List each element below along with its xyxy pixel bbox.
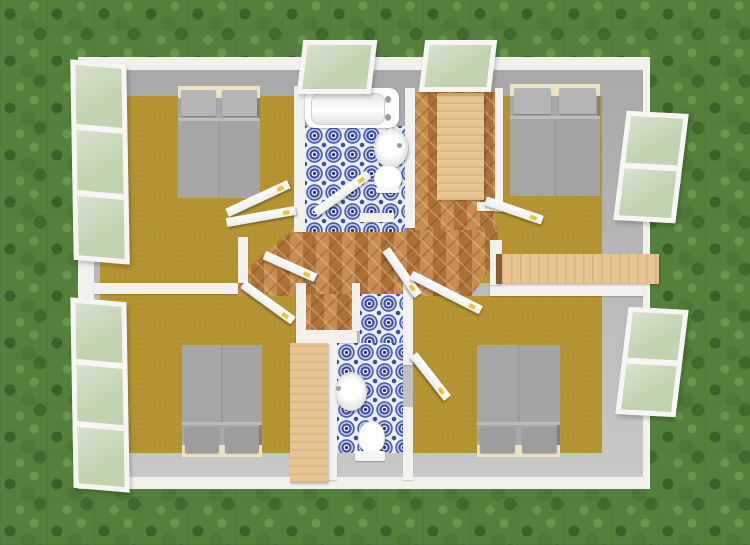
wall-bathroom-right: [405, 88, 415, 228]
bed-pillow: [222, 90, 256, 116]
bed-pillow: [514, 88, 552, 114]
window-right-2[interactable]: [615, 307, 688, 417]
window-glass: [625, 116, 683, 165]
window-glass: [75, 303, 122, 363]
wall-divider-right: [490, 283, 643, 296]
wall-corridor-right-lower: [403, 407, 413, 480]
window-glass: [75, 65, 122, 128]
door-handle-icon: [357, 176, 365, 183]
wall-bottom-left-right: [328, 343, 337, 480]
window-top-1[interactable]: [297, 40, 378, 94]
faucet-icon: [385, 96, 391, 102]
bed-pillow: [181, 90, 215, 116]
bed-pillow: [480, 427, 515, 453]
window-glass: [78, 196, 125, 259]
floor-hallway-alcove: [298, 294, 357, 330]
bed-bottom-right[interactable]: [477, 345, 560, 457]
wall-bathroom-left: [294, 86, 305, 232]
wall-alcove-bottom: [296, 330, 357, 343]
bed-top-right[interactable]: [510, 84, 600, 196]
wall-hall-left-frag: [238, 237, 248, 283]
bed-top-left[interactable]: [178, 86, 260, 198]
window-glass: [619, 169, 677, 218]
window-top-2[interactable]: [419, 40, 497, 92]
bed-duvet: [477, 345, 560, 425]
window-glass: [76, 130, 123, 193]
bed-pillow: [559, 88, 597, 114]
door-handle-icon: [276, 185, 284, 192]
bed-pillow: [522, 427, 557, 453]
door-handle-icon: [303, 271, 311, 278]
wall-bedroom-top-right-left: [495, 88, 503, 212]
faucet-icon: [336, 386, 341, 391]
faucet-icon: [385, 114, 391, 120]
toilet-bottom[interactable]: [358, 421, 385, 453]
window-left-1[interactable]: [70, 59, 129, 264]
floor-corridor: [360, 294, 403, 343]
toilet-top-base: [376, 187, 399, 193]
wall-hall-top-stub: [360, 213, 394, 222]
door-handle-icon: [282, 209, 290, 214]
window-glass: [627, 312, 683, 360]
window-glass: [621, 364, 677, 412]
bed-pillow: [185, 427, 219, 453]
door-handle-icon: [281, 311, 289, 318]
washbasin-bottom[interactable]: [335, 372, 367, 411]
wardrobe-dressing-area[interactable]: [437, 93, 484, 200]
wardrobe-bottom[interactable]: [290, 343, 328, 483]
door-handle-icon: [529, 214, 537, 220]
window-left-2[interactable]: [70, 297, 129, 492]
bed-duvet: [178, 118, 260, 198]
wall-divider-left: [94, 283, 238, 294]
faucet-icon: [397, 143, 402, 148]
window-glass: [77, 365, 124, 425]
washbasin-top[interactable]: [374, 128, 408, 168]
bathtub-basin: [311, 93, 385, 125]
wall-alcove-mid: [352, 283, 360, 331]
door-handle-icon: [409, 284, 416, 292]
sideboard-right[interactable]: [496, 254, 659, 284]
bed-bottom-left[interactable]: [182, 345, 262, 457]
floor-plan-3d-view: [0, 0, 750, 545]
window-glass: [78, 427, 125, 487]
window-glass: [424, 45, 491, 87]
door-handle-icon: [468, 303, 476, 310]
window-right-1[interactable]: [613, 111, 688, 223]
bathtub[interactable]: [305, 88, 399, 128]
toilet-bottom-base: [355, 451, 385, 461]
window-glass: [302, 45, 371, 89]
bed-pillow: [225, 427, 259, 453]
bed-duvet: [182, 345, 262, 425]
bed-duvet: [510, 116, 600, 196]
door-handle-icon: [438, 387, 445, 395]
